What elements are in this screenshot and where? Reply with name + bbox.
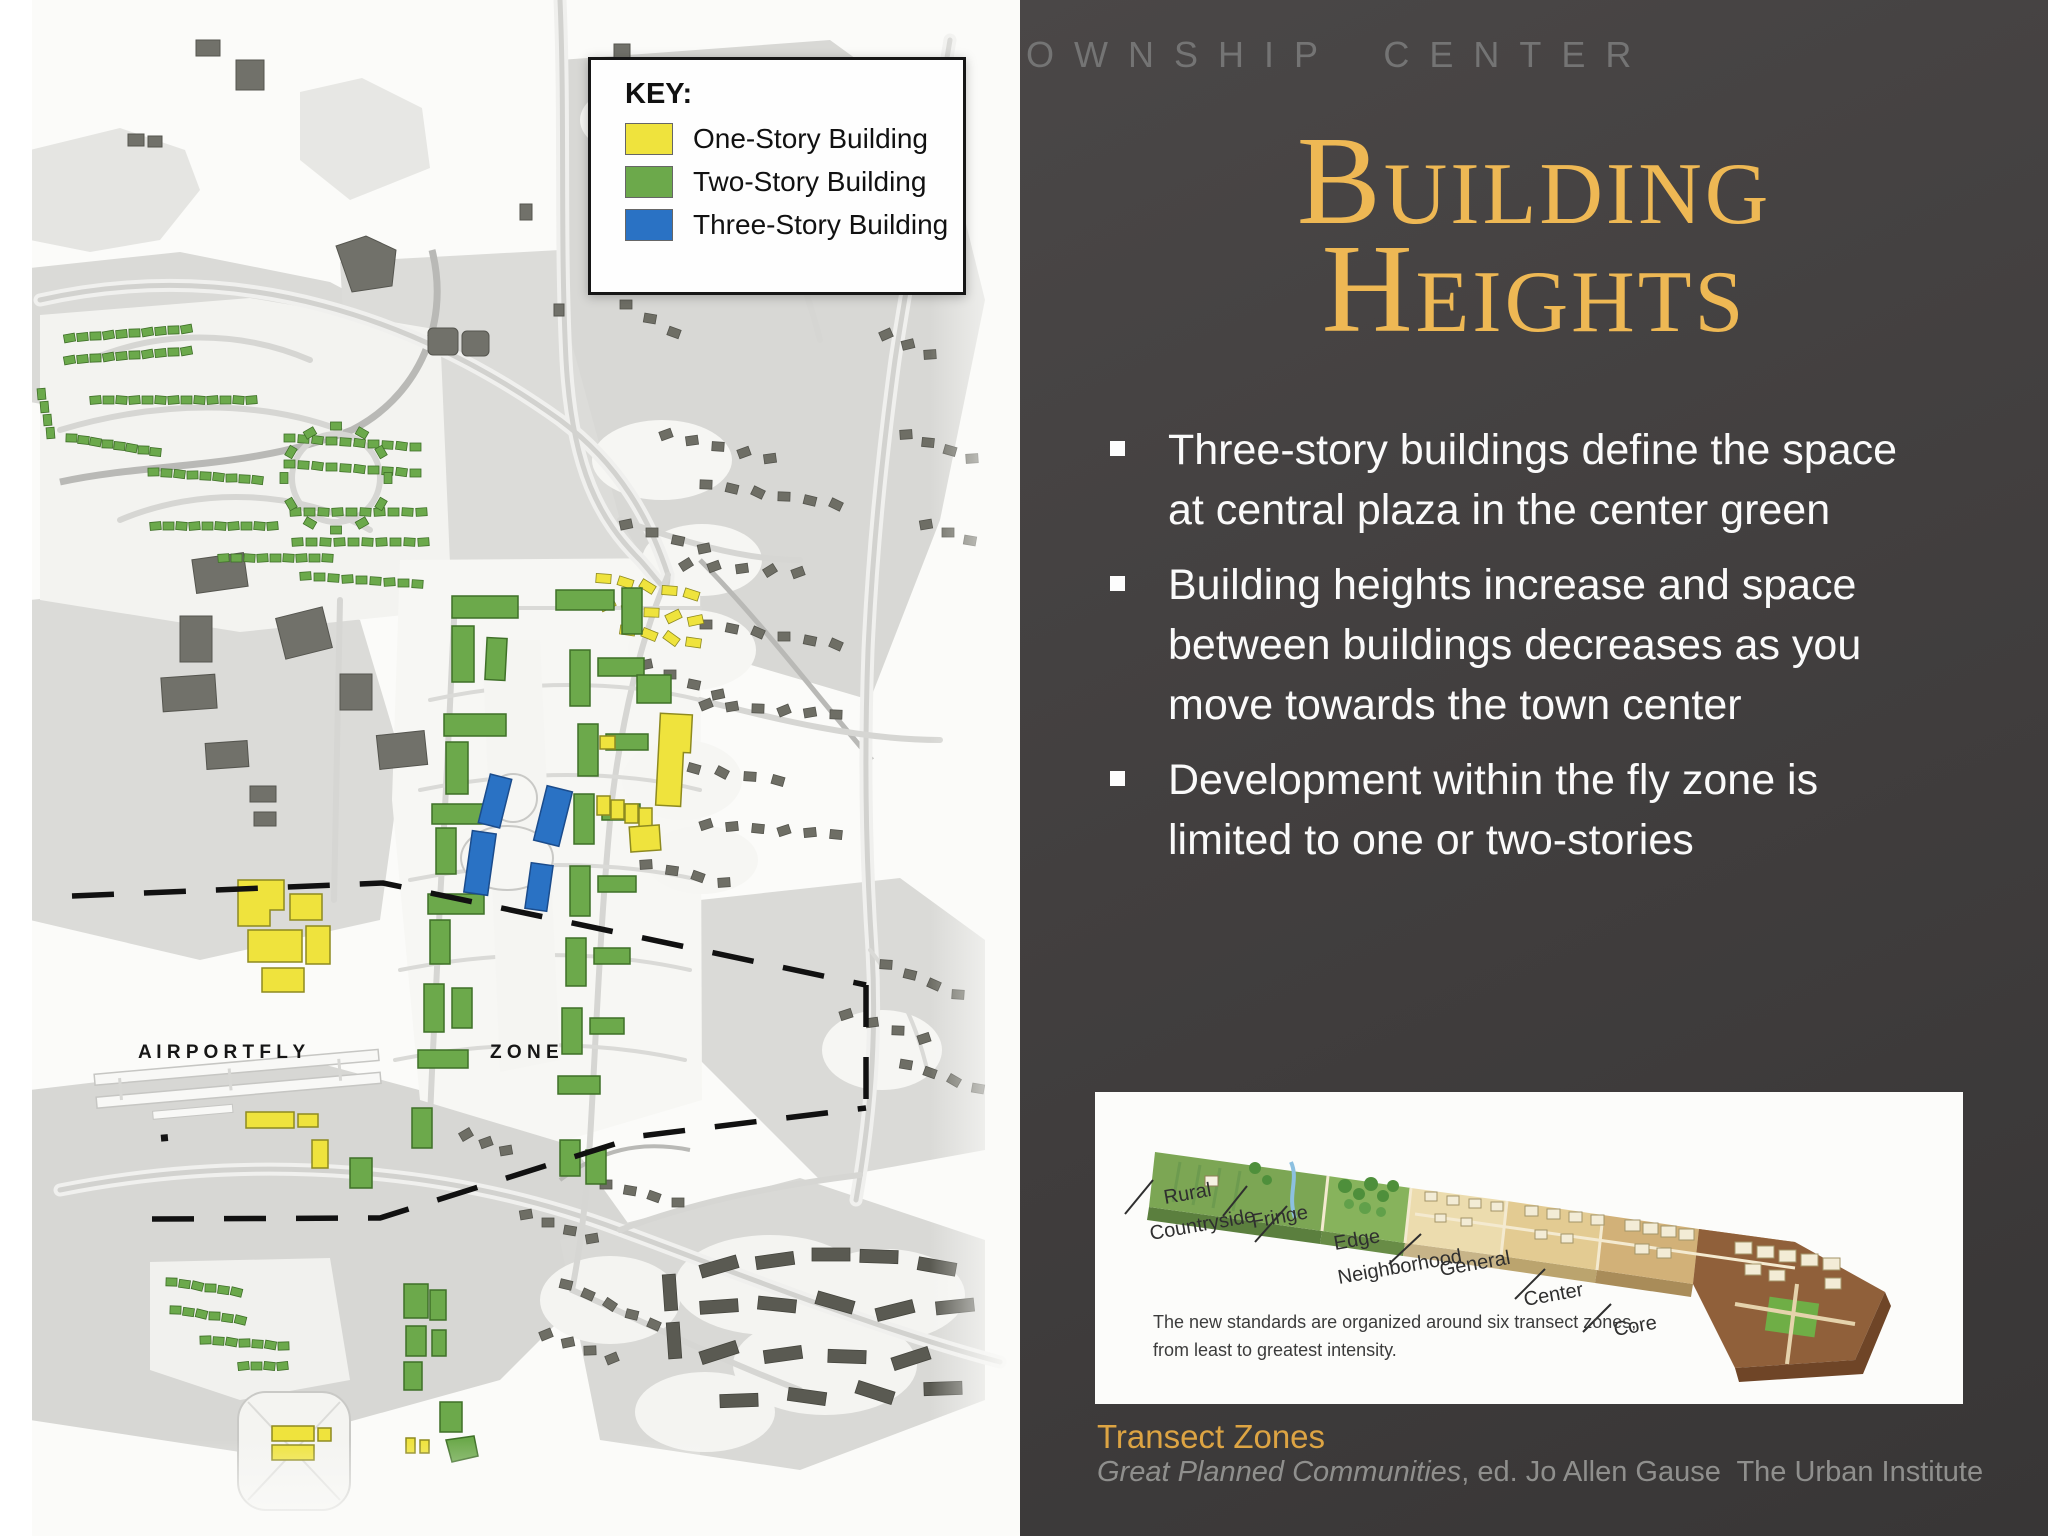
- map-key: KEY: One-Story Building Two-Story Buildi…: [588, 57, 966, 295]
- three-story-swatch: [625, 209, 673, 241]
- figure-credit: Great Planned Communities, ed. Jo Allen …: [1097, 1456, 1983, 1489]
- content-panel: OWNSHIP CENTER BuildingHeights Three-sto…: [1020, 0, 2048, 1536]
- key-row-one-story: One-Story Building: [625, 123, 963, 155]
- bullet-item: Building heights increase and space betw…: [1108, 555, 1918, 735]
- transect-zones-figure: Rural Countryside Fringe Edge Neighborho…: [1095, 1092, 1963, 1404]
- two-story-label: Two-Story Building: [693, 166, 926, 198]
- bullet-text: Building heights increase and space betw…: [1168, 561, 1861, 729]
- key-row-three-story: Three-Story Building: [625, 209, 963, 241]
- bullet-list: Three-story buildings define the space a…: [1108, 420, 1918, 885]
- slide-banner: OWNSHIP CENTER: [1026, 34, 1651, 76]
- transect-caption-line1: The new standards are organized around s…: [1153, 1312, 1636, 1332]
- fly-zone-label-right: Z O N E: [490, 1042, 559, 1063]
- bullet-square-icon: [1110, 441, 1125, 456]
- bullet-square-icon: [1110, 576, 1125, 591]
- map-key-title: KEY:: [625, 78, 963, 111]
- page-title-line2: Heights: [1322, 220, 1747, 359]
- bullet-item: Three-story buildings define the space a…: [1108, 420, 1918, 540]
- one-story-swatch: [625, 123, 673, 155]
- figure-credit-rest: , ed. Jo Allen Gause The Urban Institute: [1461, 1456, 1983, 1488]
- transect-zones-illustration: Rural Countryside Fringe Edge Neighborho…: [1095, 1092, 1963, 1404]
- key-row-two-story: Two-Story Building: [625, 166, 963, 198]
- township-map-panel: A I R P O R T F L Y Z O N E KEY: One-Sto…: [0, 0, 1020, 1536]
- page-title: BuildingHeights: [1020, 128, 2048, 344]
- transect-caption-line2: from least to greatest intensity.: [1153, 1340, 1397, 1360]
- slide: A I R P O R T F L Y Z O N E KEY: One-Sto…: [0, 0, 2048, 1536]
- map-left-margin: [0, 0, 32, 1536]
- fly-zone-label-left: A I R P O R T F L Y: [138, 1042, 305, 1063]
- one-story-label: One-Story Building: [693, 123, 928, 155]
- bullet-square-icon: [1110, 771, 1125, 786]
- bullet-text: Three-story buildings define the space a…: [1168, 426, 1897, 534]
- three-story-label: Three-Story Building: [693, 209, 948, 241]
- map-bottom-fade: [0, 1440, 700, 1536]
- figure-title: Transect Zones: [1097, 1418, 1325, 1456]
- two-story-swatch: [625, 166, 673, 198]
- figure-credit-book: Great Planned Communities: [1097, 1456, 1461, 1488]
- bullet-item: Development within the fly zone is limit…: [1108, 750, 1918, 870]
- bullet-text: Development within the fly zone is limit…: [1168, 756, 1818, 864]
